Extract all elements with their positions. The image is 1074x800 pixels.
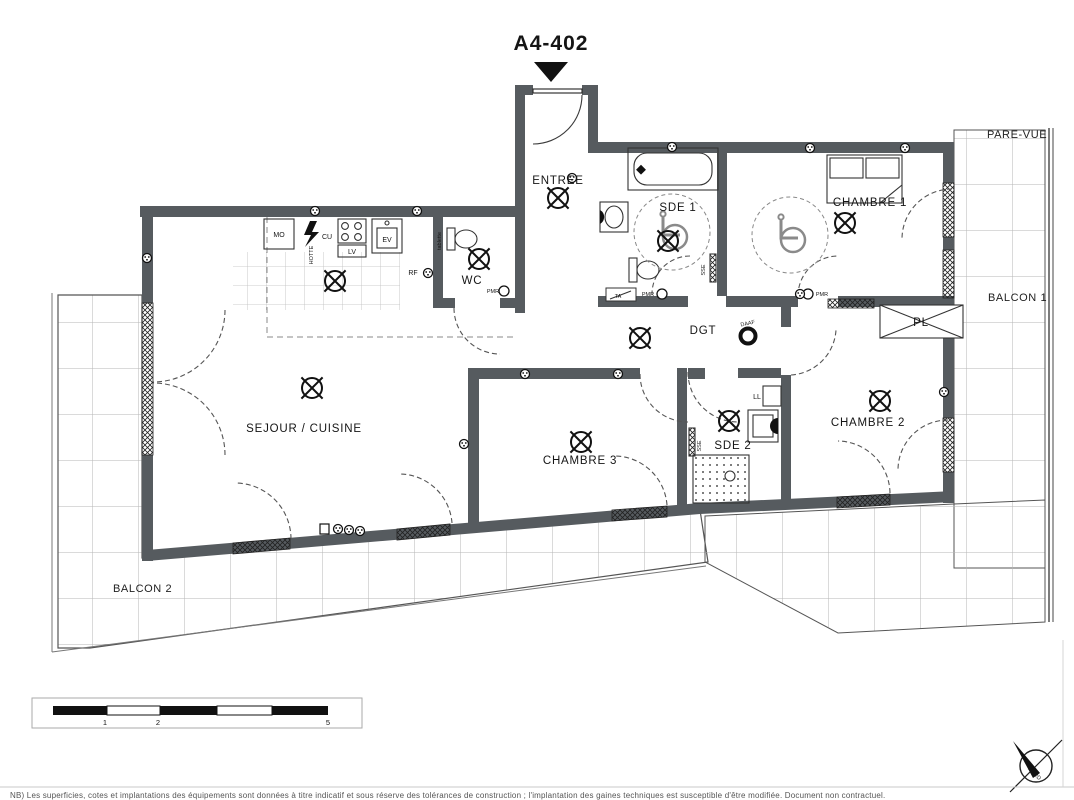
radiator-symbol: [828, 299, 874, 308]
socket-icon: [521, 370, 530, 379]
pmr-label: PMR: [487, 289, 499, 295]
floor-plan-sheet: PARE-VUE BALCON 1 BALCON 2: [0, 0, 1074, 800]
ta-label: TA: [615, 294, 622, 300]
socket-icon: [143, 254, 152, 263]
switch-icon: [320, 524, 329, 534]
towel-dryer-symbol: [689, 428, 695, 456]
socket-icon: [614, 370, 623, 379]
entrance-door: [533, 89, 582, 93]
socket-icon: [806, 144, 815, 153]
shower-symbol: [693, 455, 749, 503]
socket-icon: [460, 440, 469, 449]
equip-label-cu: CU: [322, 234, 332, 241]
sse-label: SSE: [697, 440, 703, 451]
pare-vue-label: PARE-VUE: [987, 129, 1047, 141]
balcon2-label: BALCON 2: [113, 583, 172, 595]
room-label-sejour: SEJOUR / CUISINE: [246, 423, 362, 435]
equip-label-ev: EV: [382, 237, 392, 244]
window-symbol: [142, 303, 153, 455]
window-symbol: [943, 418, 954, 472]
socket-icon: [413, 207, 422, 216]
socket-icon: [334, 525, 343, 534]
equip-label-ll: LL: [753, 394, 761, 401]
room-label-dgt: DGT: [690, 325, 717, 337]
room-label-sde1: SDE 1: [659, 202, 696, 214]
room-label-wc: WC: [462, 275, 483, 287]
equip-label-lv: LV: [348, 249, 356, 256]
socket-icon: [668, 143, 677, 152]
socket-icon: [940, 388, 949, 397]
socket-icon: [796, 290, 805, 299]
room-label-chambre2: CHAMBRE 2: [831, 417, 905, 429]
equip-label-hotte: HOTTE: [309, 245, 315, 264]
room-label-chambre3: CHAMBRE 3: [543, 455, 617, 467]
sse-label: SSE: [701, 264, 707, 275]
footnote-text: NB) Les superficies, cotes et implantati…: [10, 791, 885, 800]
room-label-entree: ENTREE: [532, 175, 583, 187]
north-arrow-icon: NORD: [1010, 740, 1062, 792]
scale-bar: 1 2 5: [32, 698, 362, 728]
room-label-pl: PL: [913, 317, 929, 329]
equip-label-rf: RF: [408, 270, 417, 277]
scale-tick-5: 5: [326, 718, 330, 727]
equip-label-tablette: tablette: [437, 232, 443, 250]
apartment-title: A4-402: [514, 32, 589, 55]
entrance-arrow-icon: [534, 62, 568, 82]
floor-plan-canvas: PARE-VUE BALCON 1 BALCON 2: [0, 0, 1074, 800]
window-symbol: [943, 250, 954, 298]
equip-label-mo: MO: [273, 232, 285, 239]
socket-icon: [311, 207, 320, 216]
window-symbol: [837, 494, 890, 508]
socket-icon: [424, 269, 433, 278]
room-label-chambre1: CHAMBRE 1: [833, 197, 907, 209]
window-symbol: [943, 183, 954, 237]
scale-tick-2: 2: [156, 718, 160, 727]
room-label-sde2: SDE 2: [714, 440, 751, 452]
pmr-label: PMR: [642, 292, 654, 298]
towel-dryer-symbol: [710, 254, 716, 282]
pmr-label: PMR: [816, 292, 828, 298]
scale-tick-1: 1: [103, 718, 107, 727]
socket-icon: [901, 144, 910, 153]
socket-icon: [356, 527, 365, 536]
socket-icon: [345, 526, 354, 535]
room-floors: [147, 96, 943, 550]
balcon1-label: BALCON 1: [988, 292, 1047, 304]
